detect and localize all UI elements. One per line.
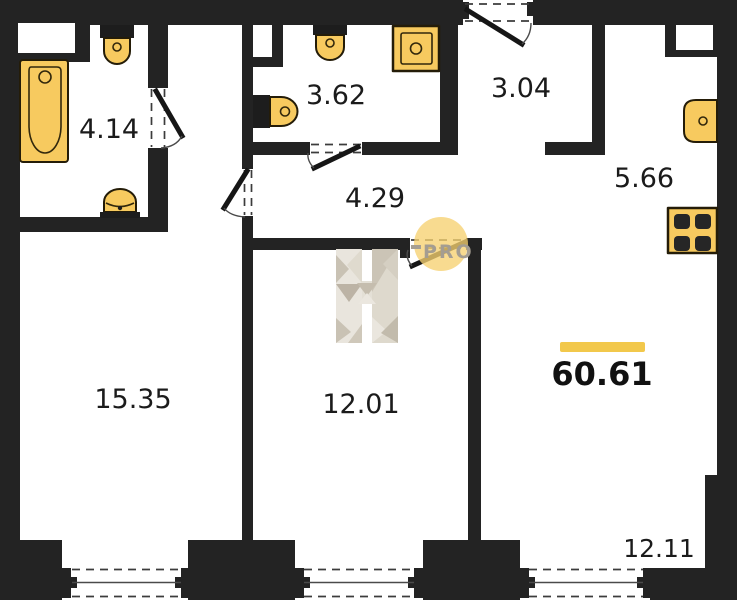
wall-kitchen-horizontal [545, 142, 605, 155]
watermark-h-glyph [336, 249, 398, 343]
sink-mount [313, 25, 347, 35]
area-label-living: 12.11 [623, 534, 695, 563]
watermark-brand-text: PRO [423, 241, 474, 263]
area-label-kitchen: 5.66 [614, 163, 674, 194]
area-label-bathroom: 4.14 [79, 114, 139, 145]
window-cap [181, 568, 190, 598]
floor-plan: PRO 4.14 3.62 3.04 4.29 5.66 15.35 12.01… [0, 0, 737, 600]
stove-burner [674, 236, 690, 251]
wall-right-upper [717, 0, 737, 478]
door-swing-arc [522, 23, 531, 44]
bathtub-icon [20, 60, 68, 162]
shaft-bar-bottom [253, 57, 283, 67]
window-cap [62, 568, 71, 598]
duct-shaft-top-right [676, 25, 713, 50]
wall-left [0, 0, 20, 545]
sink-icon [100, 25, 134, 64]
stove-burner [695, 236, 711, 251]
wall-right-lower [705, 475, 737, 570]
toilet-icon [100, 189, 140, 218]
floor-plan-canvas: PRO 4.14 3.62 3.04 4.29 5.66 15.35 12.01… [0, 0, 737, 600]
wall-bath1-right-lower [148, 148, 168, 218]
toilet2-icon [253, 95, 298, 128]
sink2-icon [313, 25, 347, 60]
area-label-room-large: 15.35 [94, 384, 171, 415]
toilet-base [100, 212, 140, 218]
door-swing-arc [224, 208, 245, 217]
wall-room2-right [468, 238, 481, 543]
kitchen-sink-icon [684, 100, 717, 142]
total-area-underline [560, 342, 645, 352]
total-area: 60.61 [551, 342, 652, 393]
duct-shaft-top-left [18, 23, 75, 53]
wall-bath1-right-upper [148, 25, 168, 88]
windows [62, 568, 652, 598]
hall-door [224, 170, 252, 217]
wall-bath2-bottom-left [242, 142, 310, 155]
toilet-tank [253, 95, 270, 128]
area-label-bathroom2: 3.62 [306, 80, 366, 111]
area-label-room-mid: 12.01 [322, 389, 399, 420]
door-frame-block [400, 238, 410, 258]
stove-icon [668, 208, 717, 253]
area-label-entry-hall: 3.04 [491, 73, 551, 104]
wall-corner-bottom-right [650, 568, 737, 600]
watermark-logo: PRO [336, 217, 474, 343]
wall-bath2-right [440, 25, 458, 155]
wall-divider-top [242, 155, 253, 169]
wall-corridor-bottom [242, 238, 410, 250]
toilet-bowl [270, 97, 298, 126]
stove-burner [695, 214, 711, 229]
door-leaf [467, 10, 522, 44]
wall-bath2-left [242, 25, 253, 143]
door-leaf [314, 147, 358, 168]
total-area-value: 60.61 [551, 355, 652, 393]
wall-pillar-bottom-left [0, 540, 62, 600]
kitchen-sink-bowl [684, 100, 717, 142]
bathroom1-door [152, 89, 183, 148]
area-label-corridor: 4.29 [345, 183, 405, 214]
door-leaf [156, 91, 182, 136]
window-cap [414, 568, 423, 598]
wall-pillar-bottom-mid [188, 540, 295, 600]
door-leaf [224, 171, 247, 208]
wall-kitchen-vertical [592, 22, 605, 153]
window-cap [643, 568, 652, 598]
stove-burner [674, 214, 690, 229]
entrance-door [457, 2, 536, 44]
shower-icon [393, 26, 439, 71]
sink-mount [100, 25, 134, 38]
wall-divider-rooms [242, 216, 253, 543]
wall-pillar-bottom-mid2 [423, 540, 520, 600]
toilet-dot [118, 206, 122, 210]
watermark-dash [411, 245, 421, 249]
window-cap [520, 568, 529, 598]
wall-bath1-bottom [0, 217, 168, 232]
window-cap [295, 568, 304, 598]
bathroom2-door [308, 145, 361, 169]
